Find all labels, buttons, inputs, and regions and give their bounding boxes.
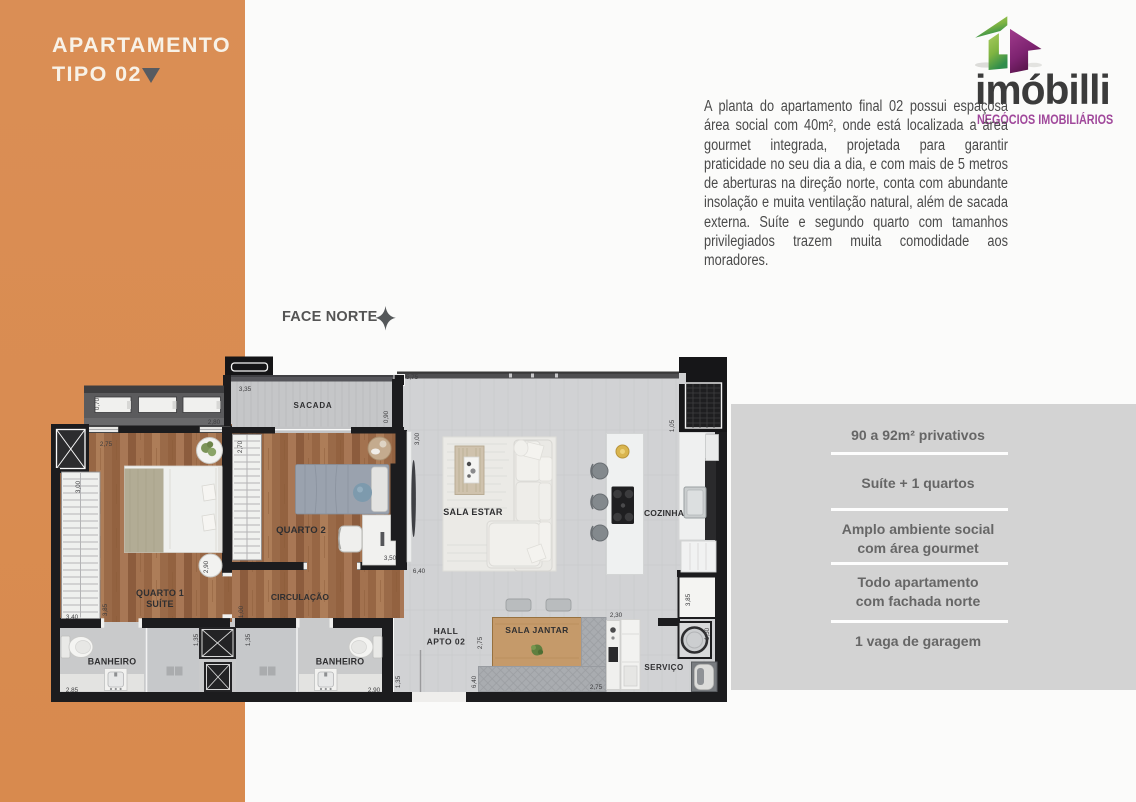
svg-text:3,50: 3,50 bbox=[384, 555, 397, 562]
svg-text:1,05: 1,05 bbox=[669, 419, 676, 432]
svg-text:6,40: 6,40 bbox=[471, 675, 478, 688]
svg-text:COZINHA: COZINHA bbox=[644, 508, 684, 518]
svg-text:1,35: 1,35 bbox=[193, 633, 200, 646]
svg-text:SALA JANTAR: SALA JANTAR bbox=[505, 625, 568, 635]
svg-text:2,75: 2,75 bbox=[477, 636, 484, 649]
svg-text:HALL: HALL bbox=[434, 626, 459, 636]
svg-text:2,30: 2,30 bbox=[610, 612, 623, 619]
svg-text:3,35: 3,35 bbox=[239, 386, 252, 393]
svg-text:0,90: 0,90 bbox=[383, 410, 390, 423]
svg-text:3,00: 3,00 bbox=[75, 480, 82, 493]
svg-text:2,75: 2,75 bbox=[590, 684, 603, 691]
svg-text:2,70: 2,70 bbox=[237, 440, 244, 453]
svg-text:6,40: 6,40 bbox=[413, 568, 426, 575]
svg-text:1,35: 1,35 bbox=[395, 675, 402, 688]
svg-text:3,00: 3,00 bbox=[414, 432, 421, 445]
svg-text:5,75: 5,75 bbox=[406, 374, 419, 381]
svg-text:BANHEIRO: BANHEIRO bbox=[88, 657, 137, 667]
svg-text:1,00: 1,00 bbox=[238, 605, 245, 618]
svg-text:SALA ESTAR: SALA ESTAR bbox=[443, 507, 503, 517]
svg-text:1,35: 1,35 bbox=[245, 633, 252, 646]
svg-text:0,70: 0,70 bbox=[94, 397, 101, 410]
svg-text:SERVIÇO: SERVIÇO bbox=[644, 663, 683, 672]
svg-text:2,80: 2,80 bbox=[208, 419, 221, 426]
svg-text:2,90: 2,90 bbox=[203, 560, 210, 573]
svg-text:CIRCULAÇÃO: CIRCULAÇÃO bbox=[271, 592, 329, 602]
svg-text:3,40: 3,40 bbox=[66, 614, 79, 621]
svg-text:3,85: 3,85 bbox=[685, 593, 692, 606]
svg-text:APTO 02: APTO 02 bbox=[427, 637, 466, 647]
svg-text:SUÍTE: SUÍTE bbox=[146, 599, 174, 609]
svg-text:2,75: 2,75 bbox=[100, 441, 113, 448]
svg-text:QUARTO 2: QUARTO 2 bbox=[276, 525, 326, 536]
svg-text:1,50: 1,50 bbox=[704, 627, 711, 640]
svg-text:2,85: 2,85 bbox=[66, 687, 79, 694]
svg-text:2,90: 2,90 bbox=[368, 687, 381, 694]
svg-text:QUARTO 1: QUARTO 1 bbox=[136, 588, 184, 598]
svg-text:BANHEIRO: BANHEIRO bbox=[316, 657, 365, 667]
svg-text:3,85: 3,85 bbox=[102, 603, 109, 616]
svg-text:SACADA: SACADA bbox=[293, 401, 332, 410]
